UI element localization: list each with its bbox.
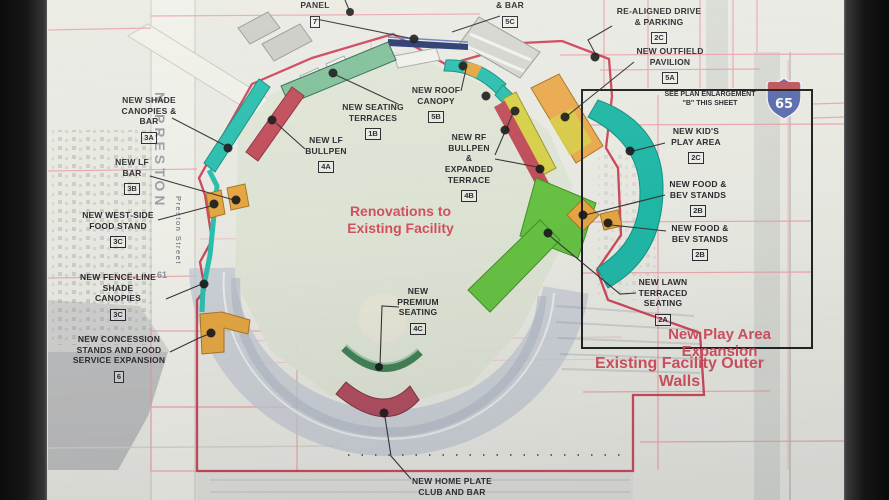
- callout-tag: 2C: [651, 32, 667, 44]
- callout-realigned-drive: RE-ALIGNED DRIVE & PARKING 2C: [604, 6, 714, 45]
- callout-plan-enlargement-note: SEE PLAN ENLARGEMENT "B" THIS SHEET: [645, 91, 775, 109]
- callout-food-bev-1: NEW FOOD & BEV STANDS 2B: [658, 179, 738, 218]
- callout-tag: 3B: [124, 183, 140, 195]
- callout-roof-canopy: NEW ROOF CANOPY 5B: [404, 85, 468, 124]
- note-existing-outer-walls: Existing Facility Outer Walls: [582, 355, 777, 391]
- callout-tag: 6: [114, 371, 124, 383]
- callout-home-plate-club: NEW HOME PLATE CLUB AND BAR: [396, 476, 508, 497]
- callout-tag: 5B: [428, 111, 444, 123]
- callout-tag: 4B: [461, 190, 477, 202]
- callout-outfield-pavilion: NEW OUTFIELD PAVILION 5A: [618, 46, 722, 85]
- callout-lf-bar: NEW LF BAR 3B: [100, 157, 164, 196]
- callout-tag: 3A: [141, 132, 157, 144]
- callout-layer: PANEL 7 & BAR 5C RE-ALIGNED DRIVE & PARK…: [0, 0, 889, 500]
- callout-tag: 4A: [318, 161, 334, 173]
- callout-tag: 1B: [365, 128, 381, 140]
- callout-tag: 4C: [410, 323, 426, 335]
- video-frame: 65: [0, 0, 889, 500]
- callout-tag: 3C: [110, 236, 126, 248]
- callout-kids-play-area: NEW KID'S PLAY AREA 2C: [658, 126, 734, 165]
- callout-tag: 5C: [502, 16, 518, 28]
- callout-concession-expansion: NEW CONCESSION STANDS AND FOOD SERVICE E…: [60, 334, 178, 384]
- callout-tag: 7: [310, 16, 320, 28]
- callout-panel: PANEL 7: [290, 0, 340, 29]
- callout-rf-bullpen: NEW RF BULLPEN & EXPANDED TERRACE 4B: [437, 132, 501, 203]
- callout-tag: 5A: [662, 72, 678, 84]
- callout-lf-bullpen: NEW LF BULLPEN 4A: [294, 135, 358, 174]
- callout-west-side-food-stand: NEW WEST-SIDE FOOD STAND 3C: [68, 210, 168, 249]
- callout-shade-canopies-bar: NEW SHADE CANOPIES & BAR 3A: [105, 95, 193, 145]
- callout-tag: 2B: [690, 205, 706, 217]
- callout-food-bev-2: NEW FOOD & BEV STANDS 2B: [660, 223, 740, 262]
- note-renovations: Renovations to Existing Facility: [328, 203, 473, 237]
- callout-bar-5c: & BAR 5C: [486, 0, 534, 29]
- callout-tag: 2B: [692, 249, 708, 261]
- callout-tag: 2A: [655, 314, 671, 326]
- callout-premium-seating: NEW PREMIUM SEATING 4C: [393, 286, 443, 336]
- callout-fence-line-canopies: NEW FENCE-LINE SHADE CANOPIES 3C: [66, 272, 170, 322]
- callout-lawn-terraced-seating: NEW LAWN TERRACED SEATING 2A: [628, 277, 698, 327]
- callout-tag: 3C: [110, 309, 126, 321]
- callout-tag: 2C: [688, 152, 704, 164]
